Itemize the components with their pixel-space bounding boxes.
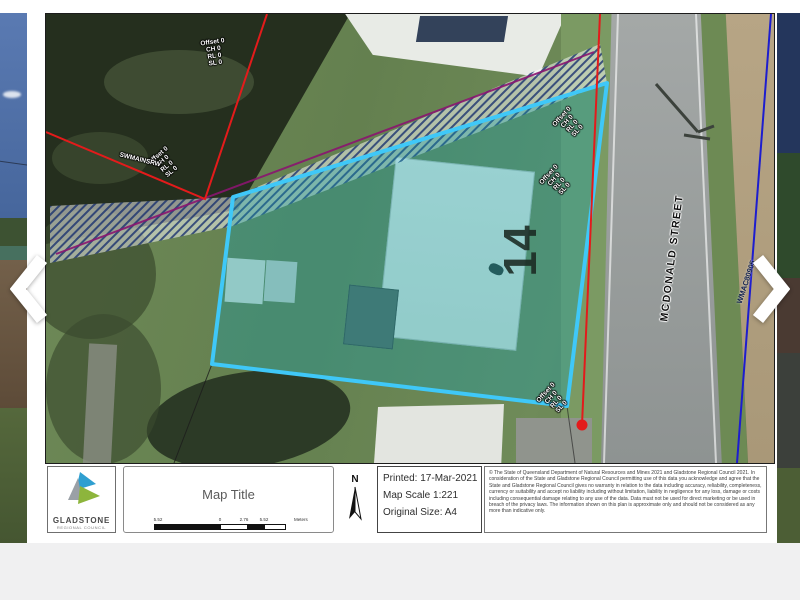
scale-segment — [247, 525, 265, 529]
aerial-photo: Offset 0 CH 0 RL 0 SL 0 Offset 0 CH 0 RL… — [46, 14, 774, 463]
tree-canopy — [104, 50, 254, 114]
map-scale: Map Scale 1:221 — [383, 490, 481, 501]
previous-button[interactable] — [10, 254, 50, 324]
aerial-map-image: Offset 0 CH 0 RL 0 SL 0 Offset 0 CH 0 RL… — [45, 13, 775, 464]
printed-date: Printed: 17-Mar-2021 — [383, 473, 481, 484]
neighbor-roof-blue — [416, 16, 508, 42]
timber-fence — [777, 353, 800, 468]
chevron-left-icon — [18, 259, 42, 319]
neighbor-roof — [374, 404, 508, 463]
original-size: Original Size: A4 — [383, 507, 481, 518]
outbuilding-roof — [264, 260, 298, 303]
north-arrow: N — [344, 474, 366, 530]
shed-roof — [343, 285, 399, 350]
scale-segment — [155, 525, 221, 529]
gladstone-logo-icon — [60, 470, 104, 510]
survey-offset-label: Offset 0 CH 0 RL 0 SL 0 — [200, 37, 228, 69]
viewer-background — [0, 543, 800, 600]
sky-photo-fragment — [0, 13, 27, 218]
scale-tick-label: 5.52 — [154, 517, 163, 522]
grass — [777, 468, 800, 543]
scale-bar: 5.52 0 2.76 5.52 Meters — [154, 517, 322, 529]
cloud — [3, 91, 21, 98]
north-label: N — [344, 474, 366, 485]
north-arrow-icon — [347, 485, 363, 521]
copyright-box: © The State of Queensland Department of … — [484, 466, 767, 533]
scale-tick-label: 0 — [219, 517, 222, 522]
outbuilding-roof — [225, 258, 266, 305]
scale-tick-label: 5.52 — [260, 517, 269, 522]
scale-segment — [221, 525, 247, 529]
logo-title: GLADSTONE — [48, 516, 115, 525]
scale-tick-label: 2.76 — [240, 517, 249, 522]
image-viewer: Offset 0 CH 0 RL 0 SL 0 Offset 0 CH 0 RL… — [0, 0, 800, 600]
concrete-pad — [516, 418, 592, 463]
scale-segment — [265, 525, 285, 529]
logo-subtitle: REGIONAL COUNCIL — [48, 525, 115, 530]
council-logo-box: GLADSTONE REGIONAL COUNCIL — [47, 466, 116, 533]
copyright-text: © The State of Queensland Department of … — [489, 470, 762, 515]
lot-number-label: 14 — [493, 225, 547, 276]
chevron-right-icon — [758, 259, 782, 319]
sky-photo-fragment — [777, 13, 800, 153]
grass — [0, 408, 27, 543]
scale-bar-labels: 5.52 0 2.76 5.52 Meters — [154, 517, 322, 523]
map-title: Map Title — [124, 487, 333, 502]
next-button[interactable] — [750, 254, 790, 324]
tree-line — [0, 218, 27, 246]
scale-unit-label: Meters — [294, 517, 308, 522]
print-info-box: Printed: 17-Mar-2021 Map Scale 1:221 Ori… — [377, 466, 482, 533]
scale-bar-segments — [154, 524, 286, 530]
map-title-box: Map Title 5.52 0 2.76 5.52 Meters — [123, 466, 334, 533]
